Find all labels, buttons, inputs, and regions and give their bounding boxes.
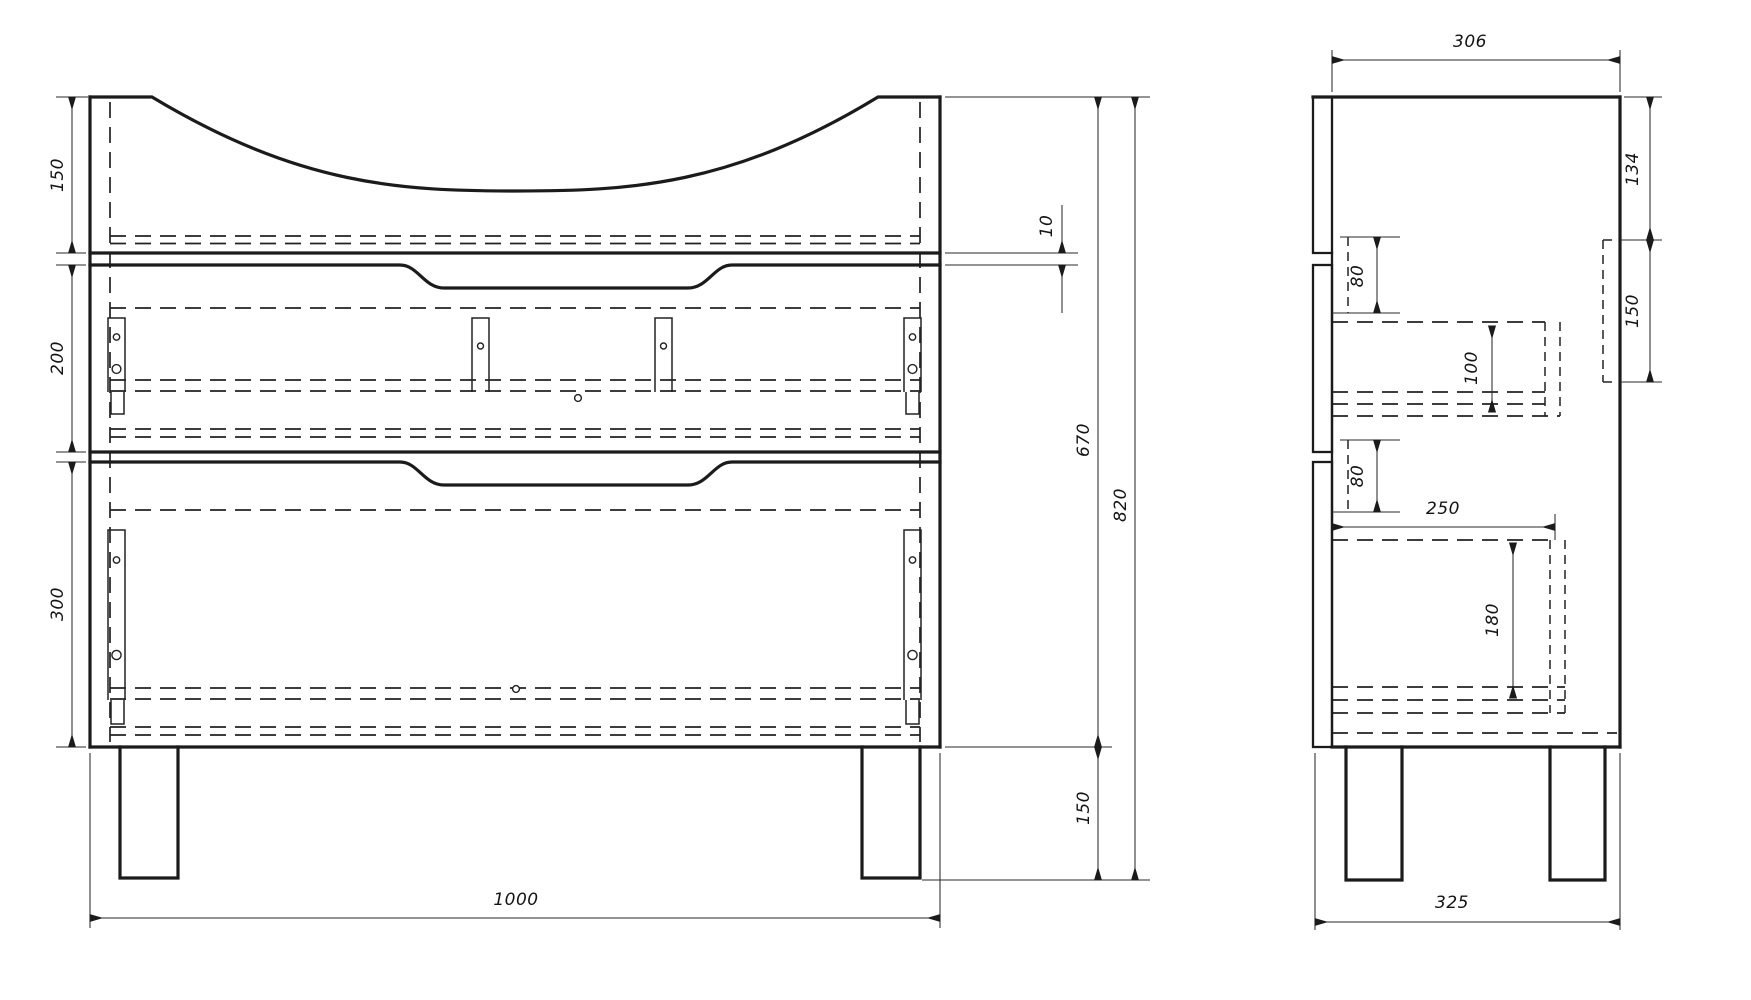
- side-back-leg: [1550, 747, 1605, 880]
- dim-side-drawer2-box-depth: 250: [1426, 499, 1460, 519]
- front-left-dimensions: 150 200 300: [48, 97, 88, 747]
- dim-front-carcass-height: 670: [1074, 423, 1094, 457]
- drawer1-handle-cutout: [90, 265, 940, 288]
- front-legs: [120, 747, 920, 878]
- dim-side-rail-height: 150: [1623, 294, 1643, 328]
- side-internal-dimensions: 80 100 80 250 180: [1332, 237, 1555, 698]
- cabinet-drawing-svg: 150 200 300 10 670 150 820 1000: [0, 0, 1751, 1000]
- dim-front-drawer1: 200: [48, 341, 68, 375]
- dim-side-lower-slide-offset: 80: [1348, 465, 1368, 488]
- side-view: 306 134 150 80 100 80 250: [1313, 32, 1662, 930]
- front-left-leg: [120, 747, 178, 878]
- side-hidden-lines: [1332, 237, 1618, 733]
- dim-front-drawer2: 300: [48, 587, 68, 621]
- dim-front-gap: 10: [1037, 215, 1057, 238]
- dim-side-upper-slide-offset: 80: [1348, 265, 1368, 288]
- dim-front-leg-height: 150: [1074, 791, 1094, 825]
- dim-side-drawer1-box-height: 100: [1462, 351, 1482, 385]
- dim-front-overall-height: 820: [1111, 488, 1131, 522]
- dim-side-rail-offset: 134: [1623, 152, 1643, 186]
- dim-front-top-section: 150: [48, 158, 68, 192]
- front-right-dimensions: 10 670 150 820: [922, 97, 1150, 880]
- drawing-sheet: 150 200 300 10 670 150 820 1000: [0, 0, 1751, 1000]
- side-carcass-outline: [1313, 97, 1620, 747]
- dim-side-carcass-depth: 306: [1453, 32, 1487, 52]
- front-hidden-lines: [110, 102, 920, 742]
- front-drawer-slide-brackets: [108, 318, 921, 724]
- front-carcass-outline: [90, 97, 940, 747]
- side-bottom-dimension: 325: [1315, 753, 1620, 930]
- side-front-panels: [1313, 97, 1332, 747]
- dim-side-overall-depth: 325: [1435, 893, 1469, 913]
- side-front-leg: [1346, 747, 1402, 880]
- side-top-dimension: 306: [1332, 32, 1620, 92]
- front-right-leg: [862, 747, 920, 878]
- drawer2-handle-cutout: [90, 462, 940, 485]
- front-bottom-dimension: 1000: [90, 753, 940, 928]
- side-legs: [1346, 747, 1605, 880]
- front-view: 150 200 300 10 670 150 820 1000: [48, 97, 1150, 928]
- dim-side-drawer2-box-height: 180: [1483, 603, 1503, 637]
- dim-front-overall-width: 1000: [493, 890, 538, 910]
- side-right-dimensions: 134 150: [1620, 97, 1662, 382]
